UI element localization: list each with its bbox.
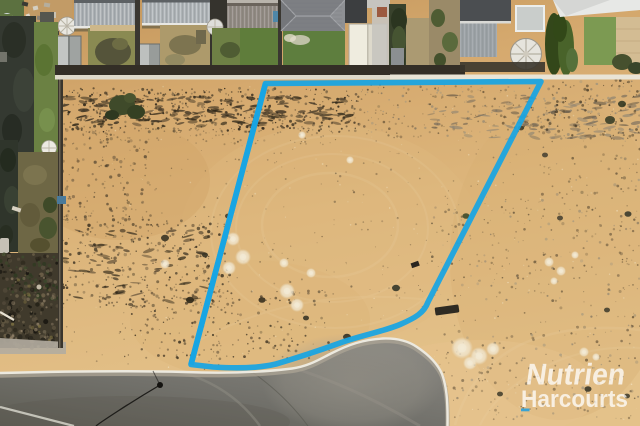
svg-text:Harcourts: Harcourts: [521, 386, 628, 413]
